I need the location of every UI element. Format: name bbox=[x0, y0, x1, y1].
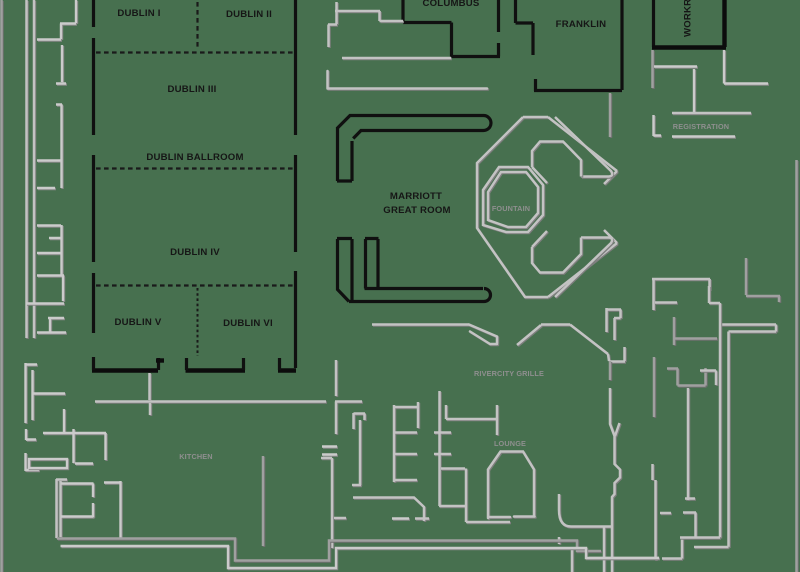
svg-text:DUBLIN IV: DUBLIN IV bbox=[170, 247, 220, 258]
svg-text:DUBLIN II: DUBLIN II bbox=[226, 9, 272, 20]
svg-text:WORKROOM: WORKROOM bbox=[683, 0, 694, 37]
svg-text:FRANKLIN: FRANKLIN bbox=[556, 19, 607, 30]
svg-text:FOUNTAIN: FOUNTAIN bbox=[492, 204, 530, 213]
svg-text:DUBLIN III: DUBLIN III bbox=[168, 84, 217, 95]
svg-text:DUBLIN BALLROOM: DUBLIN BALLROOM bbox=[146, 152, 243, 163]
svg-text:MARRIOTT: MARRIOTT bbox=[390, 191, 442, 202]
svg-text:LOUNGE: LOUNGE bbox=[494, 439, 526, 448]
svg-text:COLUMBUS: COLUMBUS bbox=[422, 0, 479, 9]
svg-text:DUBLIN VI: DUBLIN VI bbox=[223, 318, 273, 329]
svg-text:REGISTRATION: REGISTRATION bbox=[673, 122, 729, 131]
svg-text:RIVERCITY GRILLE: RIVERCITY GRILLE bbox=[474, 369, 544, 378]
svg-text:GREAT ROOM: GREAT ROOM bbox=[383, 205, 450, 216]
svg-text:DUBLIN I: DUBLIN I bbox=[117, 8, 160, 19]
svg-text:KITCHEN: KITCHEN bbox=[179, 452, 212, 461]
svg-text:DUBLIN V: DUBLIN V bbox=[115, 317, 162, 328]
